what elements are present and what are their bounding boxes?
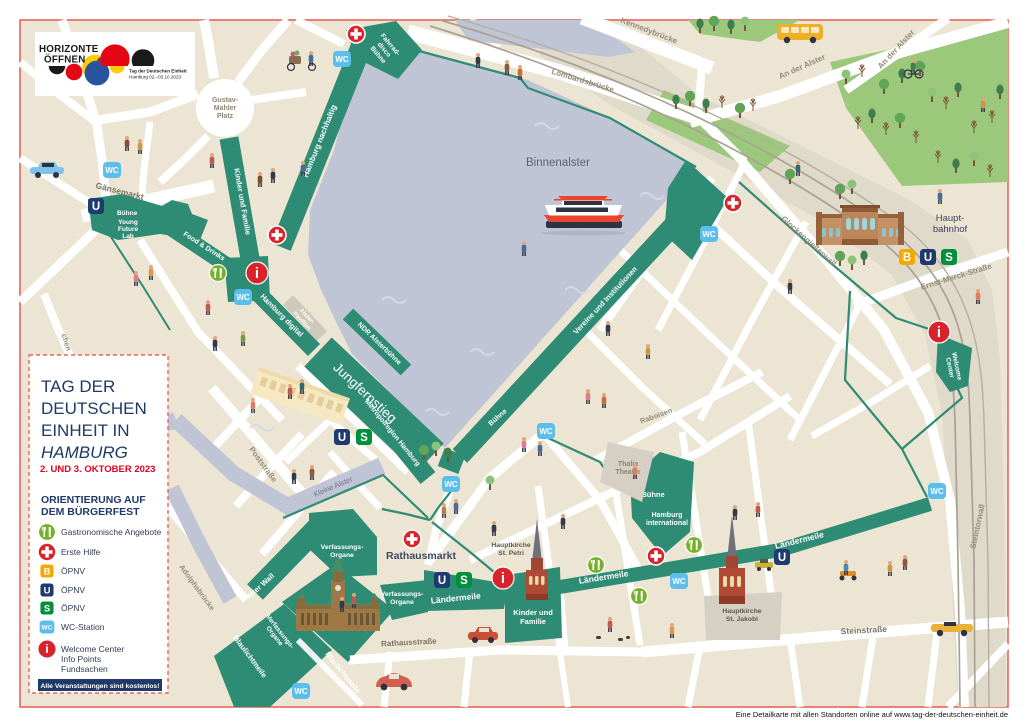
svg-text:Future: Future <box>118 226 139 233</box>
svg-text:St. Jakobi: St. Jakobi <box>726 616 758 623</box>
svg-text:Organe: Organe <box>330 552 354 559</box>
svg-text:EINHEIT IN: EINHEIT IN <box>41 421 129 440</box>
svg-text:Tag der Deutschen Einheit: Tag der Deutschen Einheit <box>129 69 187 74</box>
svg-text:Alle Veranstaltungen sind kost: Alle Veranstaltungen sind kostenlos! <box>41 683 160 690</box>
svg-text:Welcome Center: Welcome Center <box>61 644 124 654</box>
svg-text:Lab: Lab <box>122 233 134 240</box>
svg-text:Verfassungs-: Verfassungs- <box>321 544 364 551</box>
svg-text:DEM BÜRGERFEST: DEM BÜRGERFEST <box>41 505 140 518</box>
svg-text:Hamburg 02.–03.10.2023: Hamburg 02.–03.10.2023 <box>129 75 182 80</box>
svg-text:St. Petri: St. Petri <box>498 550 524 557</box>
svg-text:Hamburg: Hamburg <box>652 512 683 519</box>
svg-text:HAMBURG: HAMBURG <box>41 443 128 462</box>
svg-text:Hauptkirche: Hauptkirche <box>722 608 762 615</box>
svg-text:Haupt-: Haupt- <box>936 213 965 224</box>
svg-text:Kinder und: Kinder und <box>513 608 553 617</box>
svg-text:2. UND 3. OKTOBER 2023: 2. UND 3. OKTOBER 2023 <box>40 464 155 475</box>
svg-text:ÖPNV: ÖPNV <box>61 585 85 595</box>
svg-text:Young: Young <box>118 219 138 226</box>
svg-text:DEUTSCHEN: DEUTSCHEN <box>41 399 147 418</box>
svg-text:ÖPNV: ÖPNV <box>61 603 85 613</box>
svg-text:ORIENTIERUNG AUF: ORIENTIERUNG AUF <box>41 494 146 506</box>
svg-text:Erste Hilfe: Erste Hilfe <box>61 547 100 557</box>
svg-text:Rathausmarkt: Rathausmarkt <box>386 550 457 562</box>
svg-text:TAG DER: TAG DER <box>41 377 115 396</box>
svg-text:HORIZONTE: HORIZONTE <box>39 44 99 55</box>
svg-text:Platz: Platz <box>217 113 234 120</box>
svg-text:Binnenalster: Binnenalster <box>526 157 590 169</box>
svg-text:ÖFFNEN: ÖFFNEN <box>44 55 85 66</box>
svg-text:Bühne: Bühne <box>641 490 664 499</box>
svg-text:Gustav-: Gustav- <box>212 97 239 104</box>
svg-text:WC-Station: WC-Station <box>61 622 105 632</box>
svg-text:Info Points: Info Points <box>61 654 101 664</box>
svg-text:Bühne: Bühne <box>117 210 138 217</box>
svg-text:Eine Detailkarte mit allen Sta: Eine Detailkarte mit allen Standorten on… <box>736 710 1008 719</box>
svg-text:Hauptkirche: Hauptkirche <box>491 542 531 549</box>
svg-text:bahnhof: bahnhof <box>933 224 968 235</box>
svg-text:Gastronomische Angebote: Gastronomische Angebote <box>61 527 161 537</box>
svg-text:Familie: Familie <box>520 617 546 626</box>
svg-text:Organe: Organe <box>390 599 414 606</box>
svg-text:Fundsachen: Fundsachen <box>61 664 108 674</box>
svg-text:Mahler: Mahler <box>214 105 237 112</box>
svg-text:Verfassungs-: Verfassungs- <box>381 591 424 598</box>
svg-text:ÖPNV: ÖPNV <box>61 566 85 576</box>
svg-text:international: international <box>646 520 688 527</box>
